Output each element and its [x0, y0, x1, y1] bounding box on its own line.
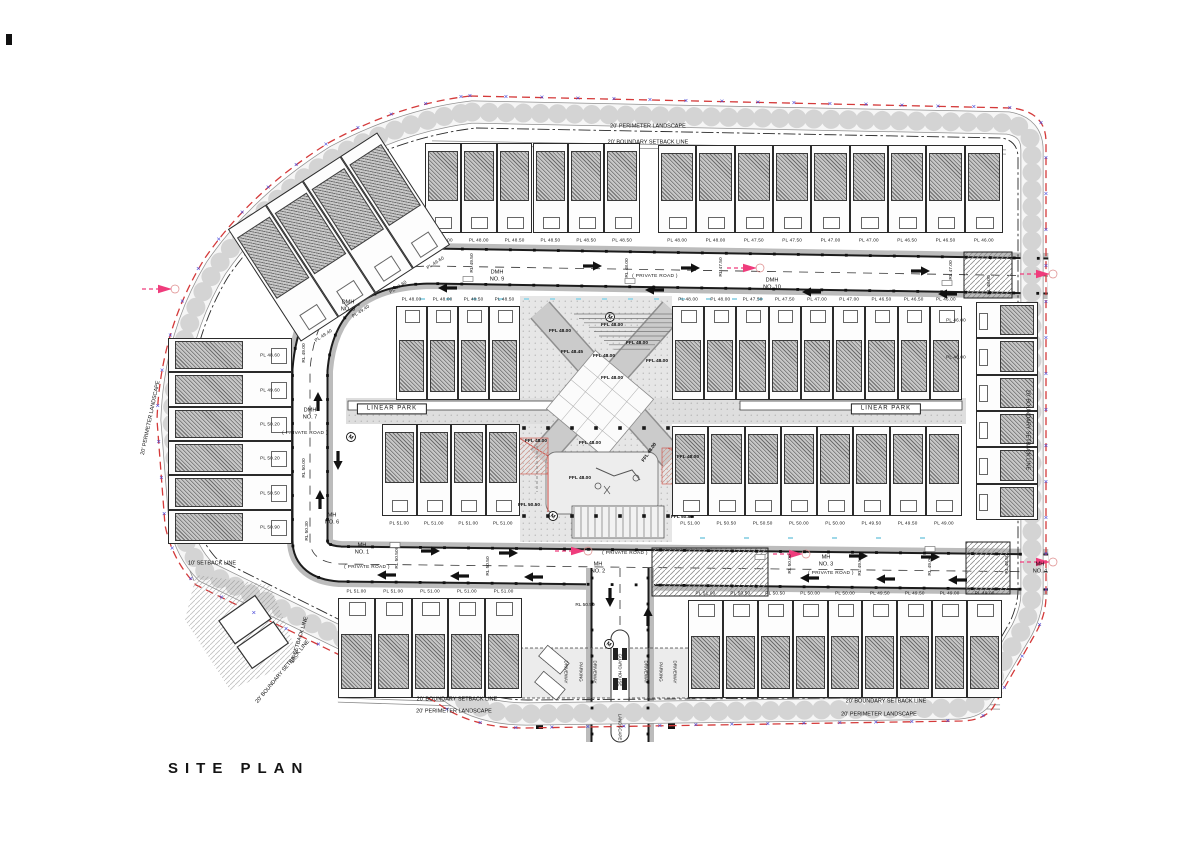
boundary-marker: ×: [1044, 477, 1048, 486]
boundary-marker: ×: [1044, 189, 1048, 198]
boundary-marker: ×: [766, 719, 770, 728]
boundary-marker: ×: [168, 330, 172, 339]
boundary-marker: ×: [1044, 225, 1048, 234]
boundary-marker: ×: [316, 640, 320, 649]
boundary-marker: ×: [612, 94, 616, 103]
boundary-marker: ×: [196, 264, 200, 273]
boundary-marker: ×: [910, 717, 914, 726]
boundary-marker: ×: [1044, 369, 1048, 378]
boundary-marker: ×: [972, 102, 976, 111]
boundary-marker: ×: [802, 719, 806, 728]
manhole-icon: M: [605, 640, 614, 649]
boundary-marker: ×: [1020, 652, 1024, 661]
boundary-marker: ×: [756, 97, 760, 106]
boundary-marker: ×: [981, 711, 985, 720]
boundary-marker: ×: [1044, 549, 1048, 558]
boundary-marker: ×: [504, 92, 508, 101]
boundary-marker: ×: [1002, 683, 1006, 692]
boundary-marker: ×: [658, 721, 662, 730]
boundary-marker: ×: [159, 473, 163, 482]
boundary-marker: ×: [514, 723, 518, 732]
boundary-marker: ×: [324, 140, 328, 149]
boundary-marker: ×: [1044, 441, 1048, 450]
manhole-icon: M: [347, 433, 356, 442]
utility-structures: [185, 575, 300, 690]
boundary-marker: ×: [1044, 513, 1048, 522]
boundary-marker: ×: [1044, 261, 1048, 270]
boundary-marker: ×: [459, 92, 463, 101]
boundary-marker: ×: [423, 99, 427, 108]
site-plan-canvas: { "title": "SITE PLAN", "colors": { "lin…: [0, 0, 1200, 848]
boundary-marker: ×: [468, 91, 472, 100]
boundary-marker: ×: [730, 720, 734, 729]
boundary-marker: ×: [648, 95, 652, 104]
site-plan-drawing: MMMM××××××××××××××××××××××××××××××××××××…: [0, 0, 1200, 848]
boundary-marker: ×: [356, 123, 360, 132]
boundary-marker: ×: [1044, 297, 1048, 306]
boundary-marker: ×: [162, 509, 166, 518]
boundary-marker: ×: [828, 99, 832, 108]
boundary-marker: ×: [413, 687, 417, 696]
boundary-marker: ×: [156, 401, 160, 410]
traffic-arrow: [333, 451, 342, 470]
boundary-marker: ×: [284, 624, 288, 633]
boundary-marker: ×: [180, 296, 184, 305]
boundary-marker: ×: [936, 101, 940, 110]
boundary-marker: ×: [540, 93, 544, 102]
boundary-marker: ×: [478, 718, 482, 727]
boundary-marker: ×: [445, 704, 449, 713]
boundary-marker: ×: [219, 592, 223, 601]
boundary-marker: ×: [1044, 405, 1048, 414]
boundary-marker: ×: [694, 720, 698, 729]
boundary-marker: ×: [294, 160, 298, 169]
boundary-marker: ×: [266, 182, 270, 191]
boundary-marker: ×: [349, 655, 353, 664]
boundary-marker: ×: [586, 722, 590, 731]
boundary-marker: ×: [252, 608, 256, 617]
boundary-marker: ×: [864, 100, 868, 109]
corner-mark: [6, 34, 12, 45]
manhole-icon: M: [549, 512, 558, 521]
boundary-marker: ×: [170, 544, 174, 553]
boundary-marker: ×: [156, 437, 160, 446]
boundary-marker: ×: [576, 93, 580, 102]
boundary-marker: ×: [189, 574, 193, 583]
boundary-marker: ×: [240, 207, 244, 216]
boundary-marker: ×: [1044, 153, 1048, 162]
boundary-marker: ×: [900, 101, 904, 110]
boundary-marker: ×: [946, 716, 950, 725]
boundary-marker: ×: [381, 671, 385, 680]
boundary-marker: ×: [389, 109, 393, 118]
boundary-marker: ×: [550, 723, 554, 732]
boundary-marker: ×: [1037, 620, 1041, 629]
boundary-marker: ×: [216, 235, 220, 244]
boundary-marker: ×: [1044, 585, 1048, 594]
boundary-marker: ×: [1008, 103, 1012, 112]
central-park: [346, 296, 966, 542]
boundary-marker: ×: [838, 718, 842, 727]
boundary-marker: ×: [1044, 333, 1048, 342]
boundary-marker: ×: [720, 97, 724, 106]
flow-arrow: [142, 285, 179, 293]
boundary-marker: ×: [792, 98, 796, 107]
boundary-marker: ×: [160, 365, 164, 374]
boundary-marker: ×: [622, 721, 626, 730]
boundary-marker: ×: [684, 96, 688, 105]
boundary-marker: ×: [1039, 118, 1043, 127]
boundary-marker: ×: [874, 717, 878, 726]
